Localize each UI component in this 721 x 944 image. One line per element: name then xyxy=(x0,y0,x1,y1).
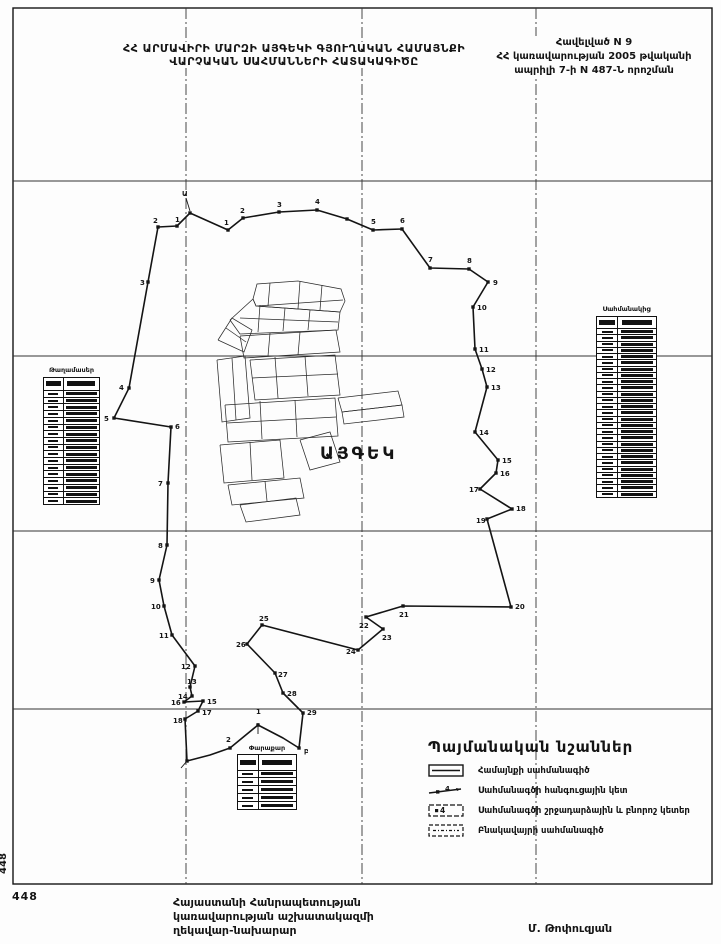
illegible-text-smudge xyxy=(242,805,253,807)
illegible-text-smudge xyxy=(621,424,654,427)
boundary-point-label: 6 xyxy=(400,217,405,225)
illegible-text-smudge xyxy=(242,781,253,783)
illegible-text-smudge xyxy=(621,449,654,452)
community-boundary-line-icon xyxy=(428,764,468,777)
settlement-parcel-line xyxy=(305,356,308,396)
illegible-text-smudge xyxy=(602,418,613,420)
table-cell xyxy=(238,786,259,793)
illegible-text-smudge xyxy=(621,355,654,358)
boundary-point-dot xyxy=(170,633,173,636)
boundary-point-label: 27 xyxy=(278,671,288,679)
boundary-point-dot xyxy=(201,699,204,702)
boundary-point-label: 18 xyxy=(173,717,183,725)
table-row xyxy=(597,491,656,497)
illegible-text-smudge xyxy=(602,362,613,364)
illegible-text-smudge xyxy=(602,424,613,426)
table-cell xyxy=(238,755,259,770)
boundary-point-dot xyxy=(478,487,481,490)
legend-item: 4 Սահմանագծի հանգուցային կետ xyxy=(428,784,710,797)
settlement-boundary-line-icon xyxy=(428,824,468,837)
illegible-text-smudge xyxy=(602,406,613,408)
boundary-point-dot xyxy=(185,759,188,762)
table-row xyxy=(44,491,99,498)
boundary-point-label: 12 xyxy=(486,366,496,374)
boundary-point-label: 23 xyxy=(382,634,392,642)
boundary-point-dot xyxy=(480,367,483,370)
legend-item: 4 Սահմանագծի շրջադարձային և բնորոշ կետեր xyxy=(428,804,710,817)
illegible-text-smudge xyxy=(602,493,613,495)
illegible-text-smudge xyxy=(48,406,58,408)
illegible-text-smudge xyxy=(602,387,613,389)
legend-item: Համայնքի սահմանագիծ xyxy=(428,764,710,777)
boundary-point-dot xyxy=(510,507,513,510)
legend-item-label: Համայնքի սահմանագիծ xyxy=(478,766,590,776)
settlement-parcel-line xyxy=(260,401,262,439)
settlement-parcel-line xyxy=(295,400,297,437)
table-cell xyxy=(64,498,99,504)
table-row xyxy=(44,437,99,444)
community-boundary-polyline xyxy=(114,210,512,761)
table-row xyxy=(44,464,99,471)
table-cell xyxy=(259,794,296,801)
illegible-text-smudge xyxy=(48,467,58,469)
boundary-point-dot xyxy=(364,615,367,618)
table-row xyxy=(44,397,99,404)
bottom-coordinate-table xyxy=(237,754,297,810)
boundary-point-label: 20 xyxy=(515,603,525,611)
illegible-text-smudge xyxy=(48,460,58,462)
table-cell xyxy=(44,498,64,504)
table-header-row xyxy=(44,378,99,390)
table-cell xyxy=(238,794,259,801)
boundary-point-label: 2 xyxy=(240,207,245,215)
table-row xyxy=(44,430,99,437)
boundary-point-label: 4 xyxy=(119,384,124,392)
boundary-point-dot xyxy=(175,224,178,227)
illegible-text-smudge xyxy=(622,320,652,325)
appendix-line3: ապրիլի 7-ի N 487-Ն որոշման xyxy=(478,64,710,78)
boundary-point-label: 15 xyxy=(207,698,217,706)
boundary-point-dot xyxy=(169,425,172,428)
boundary-point-label: 11 xyxy=(159,632,169,640)
illegible-text-smudge xyxy=(621,436,654,439)
illegible-text-smudge xyxy=(48,413,58,415)
table-header-row xyxy=(597,317,656,328)
illegible-text-smudge xyxy=(602,468,613,470)
illegible-text-smudge xyxy=(621,411,654,414)
settlement-parcel-line xyxy=(298,281,300,309)
illegible-text-smudge xyxy=(621,405,654,408)
settlement-name-label: ԱՅԳԵԿ xyxy=(320,444,450,464)
boundary-point-dot xyxy=(381,627,384,630)
boundary-point-dot xyxy=(486,280,489,283)
table-row xyxy=(44,444,99,451)
illegible-text-smudge xyxy=(66,459,96,462)
boundary-point-dot xyxy=(428,266,431,269)
boundary-point-dot xyxy=(494,471,497,474)
boundary-point-label: 12 xyxy=(181,663,191,671)
illegible-text-smudge xyxy=(602,356,613,358)
illegible-text-smudge xyxy=(602,331,613,333)
boundary-point-label: 18 xyxy=(516,505,526,513)
table-row xyxy=(238,777,296,785)
boundary-point-label: 7 xyxy=(158,480,163,488)
illegible-text-smudge xyxy=(48,493,58,495)
table-cell xyxy=(259,786,296,793)
boundary-point-label: 13 xyxy=(187,678,197,686)
illegible-text-smudge xyxy=(48,446,58,448)
boundary-point-dot xyxy=(146,280,149,283)
illegible-text-smudge xyxy=(48,480,58,482)
illegible-text-smudge xyxy=(621,418,654,421)
illegible-text-smudge xyxy=(621,368,654,371)
boundary-point-dot xyxy=(371,228,374,231)
signature-name: Մ. Թոփուզյան xyxy=(528,922,612,935)
boundary-point-label: 2 xyxy=(153,217,158,225)
illegible-text-smudge xyxy=(621,486,654,489)
boundary-point-dot xyxy=(193,664,196,667)
table-row xyxy=(238,793,296,801)
boundary-point-dot xyxy=(345,217,348,220)
illegible-text-smudge xyxy=(621,399,654,402)
boundary-point-label: 19 xyxy=(476,517,486,525)
table-cell xyxy=(259,771,296,778)
illegible-text-smudge xyxy=(48,400,58,402)
illegible-text-smudge xyxy=(621,493,654,496)
settlement-parcel-line xyxy=(298,332,300,355)
boundary-point-dot xyxy=(260,623,263,626)
page-title: ՀՀ ԱՐՄԱՎԻՐԻ ՄԱՐԶԻ ԱՅԳԵԿԻ ԳՅՈՒՂԱԿԱՆ ՀԱՄԱՅ… xyxy=(98,42,490,68)
illegible-text-smudge xyxy=(66,433,96,436)
appendix-line1: Հավելված N 9 xyxy=(478,36,710,50)
boundary-point-label: 5 xyxy=(371,218,376,226)
boundary-point-label: բ xyxy=(304,747,309,755)
illegible-text-smudge xyxy=(621,386,654,389)
boundary-point-label: 29 xyxy=(307,709,317,717)
boundary-point-label: 3 xyxy=(277,201,282,209)
boundary-point-dot xyxy=(315,208,318,211)
illegible-text-smudge xyxy=(66,466,96,469)
boundary-point-label: 10 xyxy=(477,304,487,312)
boundary-point-dot xyxy=(228,746,231,749)
boundary-point-label: 9 xyxy=(493,279,498,287)
settlement-parcel-line xyxy=(232,358,236,420)
illegible-text-smudge xyxy=(621,374,654,377)
illegible-text-smudge xyxy=(602,399,613,401)
issuer-line1: Հայաստանի Հանրապետության xyxy=(173,896,374,910)
illegible-text-smudge xyxy=(46,381,61,386)
boundary-point-label: 16 xyxy=(171,699,181,707)
boundary-point-label: 2 xyxy=(226,736,231,744)
illegible-text-smudge xyxy=(66,486,96,489)
table-row xyxy=(44,470,99,477)
illegible-text-smudge xyxy=(66,439,96,442)
boundary-point-label: 21 xyxy=(399,611,409,619)
boundary-point-label: 14 xyxy=(479,429,489,437)
boundary-point-label: 17 xyxy=(202,709,212,717)
illegible-text-smudge xyxy=(48,473,58,475)
boundary-point-label: 4 xyxy=(315,198,320,206)
illegible-text-smudge xyxy=(602,393,613,395)
scanned-cadastral-map-page: Ա123456789101112131415161718192021222324… xyxy=(0,0,721,944)
boundary-point-dot xyxy=(509,605,512,608)
illegible-text-smudge xyxy=(602,481,613,483)
illegible-text-smudge xyxy=(602,343,613,345)
illegible-text-smudge xyxy=(602,456,613,458)
settlement-parcel-line xyxy=(265,481,267,501)
svg-text:4: 4 xyxy=(440,806,445,815)
boundary-point-dot xyxy=(190,694,193,697)
page-title-line2: ՎԱՐՉԱԿԱՆ ՍԱՀՄԱՆՆԵՐԻ ՀԱՏԱԿԱԳԻԾԸ xyxy=(98,55,490,68)
illegible-text-smudge xyxy=(66,473,96,476)
illegible-text-smudge xyxy=(621,480,654,483)
illegible-text-smudge xyxy=(621,349,654,352)
illegible-text-smudge xyxy=(621,380,654,383)
table-cell xyxy=(259,802,296,809)
boundary-point-label: 1 xyxy=(256,708,261,716)
settlement-parcel-line xyxy=(218,318,252,352)
illegible-text-smudge xyxy=(621,443,654,446)
illegible-text-smudge xyxy=(48,453,58,455)
boundary-point-dot xyxy=(196,709,199,712)
illegible-text-smudge xyxy=(621,330,654,333)
point-leader-line xyxy=(186,198,190,211)
boundary-point-label: Ա xyxy=(182,190,188,198)
legend: Պայմանական նշաններ Համայնքի սահմանագիծ 4… xyxy=(428,738,710,844)
illegible-text-smudge xyxy=(261,780,293,783)
illegible-text-smudge xyxy=(602,374,613,376)
illegible-text-smudge xyxy=(602,449,613,451)
boundary-point-dot xyxy=(273,671,276,674)
table-row xyxy=(44,484,99,491)
boundary-point-label: 9 xyxy=(150,577,155,585)
right-coordinate-table xyxy=(596,316,657,498)
boundary-point-dot xyxy=(301,711,304,714)
illegible-text-smudge xyxy=(262,760,292,765)
legend-item-label: Բնակավայրի սահմանագիծ xyxy=(478,826,604,836)
boundary-point-dot xyxy=(401,604,404,607)
table-cell xyxy=(259,778,296,785)
settlement-parcel-line xyxy=(252,374,338,378)
table-cell xyxy=(238,771,259,778)
illegible-text-smudge xyxy=(66,426,96,429)
settlement-parcel-line xyxy=(227,417,336,423)
boundary-point-dot xyxy=(400,227,403,230)
illegible-text-smudge xyxy=(48,426,58,428)
boundary-point-dot xyxy=(183,717,186,720)
settlement-parcel-line xyxy=(308,310,310,330)
page-title-line1: ՀՀ ԱՐՄԱՎԻՐԻ ՄԱՐԶԻ ԱՅԳԵԿԻ ԳՅՈՒՂԱԿԱՆ ՀԱՄԱՅ… xyxy=(98,42,490,55)
table-row xyxy=(238,770,296,778)
settlement-parcel-line xyxy=(268,283,270,306)
boundary-point-dot xyxy=(156,225,159,228)
table-cell xyxy=(44,378,64,390)
illegible-text-smudge xyxy=(261,772,293,775)
table-row xyxy=(238,785,296,793)
settlement-parcel-line xyxy=(250,442,252,480)
table-cell xyxy=(64,378,99,390)
illegible-text-smudge xyxy=(602,349,613,351)
illegible-text-smudge xyxy=(240,760,256,765)
table-row xyxy=(44,457,99,464)
boundary-point-label: 26 xyxy=(236,641,246,649)
appendix-reference: Հավելված N 9 ՀՀ կառավարության 2005 թվակա… xyxy=(478,36,710,78)
junction-point-icon: 4 xyxy=(428,784,468,797)
settlement-parcel-line xyxy=(240,330,340,358)
bottom-table-title: Փարաքար xyxy=(235,744,299,752)
boundary-point-label: 16 xyxy=(500,470,510,478)
illegible-text-smudge xyxy=(66,500,96,503)
boundary-point-label: 1 xyxy=(175,216,180,224)
illegible-text-smudge xyxy=(602,487,613,489)
boundary-point-label: 15 xyxy=(502,457,512,465)
left-table-title: Թաղամասեր xyxy=(41,366,102,374)
illegible-text-smudge xyxy=(242,773,253,775)
boundary-point-dot xyxy=(356,648,359,651)
illegible-text-smudge xyxy=(261,804,293,807)
illegible-text-smudge xyxy=(48,487,58,489)
table-cell xyxy=(259,755,296,770)
boundary-point-label: 10 xyxy=(151,603,161,611)
boundary-point-label: 3 xyxy=(140,279,145,287)
illegible-text-smudge xyxy=(621,343,654,346)
boundary-point-dot xyxy=(165,543,168,546)
boundary-point-dot xyxy=(166,481,169,484)
illegible-text-smudge xyxy=(66,453,96,456)
settlement-parcel-line xyxy=(240,318,338,322)
boundary-point-dot xyxy=(127,386,130,389)
boundary-point-dot xyxy=(485,517,488,520)
table-row xyxy=(44,390,99,397)
illegible-text-smudge xyxy=(621,461,654,464)
boundary-point-label: 8 xyxy=(467,257,472,265)
boundary-point-dot xyxy=(496,458,499,461)
table-row xyxy=(44,450,99,457)
settlement-parcel-line xyxy=(320,285,322,310)
illegible-text-smudge xyxy=(602,381,613,383)
issuer-line2: կառավարության աշխատակազմի xyxy=(173,910,374,924)
table-row xyxy=(44,410,99,417)
boundary-point-dot xyxy=(485,385,488,388)
boundary-point-label: 28 xyxy=(287,690,297,698)
illegible-text-smudge xyxy=(602,437,613,439)
boundary-point-label: 17 xyxy=(469,486,479,494)
table-cell xyxy=(597,317,618,328)
table-row xyxy=(44,424,99,431)
settlement-parcel-line xyxy=(342,405,404,424)
illegible-text-smudge xyxy=(602,443,613,445)
settlement-parcel-line xyxy=(275,357,278,398)
issuer-text-block: Հայաստանի Հանրապետության կառավարության ա… xyxy=(173,896,374,938)
illegible-text-smudge xyxy=(66,446,96,449)
table-cell xyxy=(597,492,618,497)
boundary-point-label: 5 xyxy=(104,415,109,423)
boundary-point-label: 22 xyxy=(359,622,369,630)
illegible-text-smudge xyxy=(621,336,654,339)
boundary-point-dot xyxy=(162,604,165,607)
table-row xyxy=(238,801,296,809)
illegible-text-smudge xyxy=(599,320,615,325)
legend-item-label: Սահմանագծի հանգուցային կետ xyxy=(478,786,628,796)
table-row xyxy=(44,417,99,424)
table-cell xyxy=(618,317,656,328)
settlement-parcel-line xyxy=(257,300,343,306)
settlement-parcel-line xyxy=(217,356,250,422)
illegible-text-smudge xyxy=(66,412,96,415)
issuer-line3: ղեկավար-նախարար xyxy=(173,924,374,938)
illegible-text-smudge xyxy=(621,474,654,477)
settlement-parcel-line xyxy=(268,333,270,356)
page-number-side: 448 xyxy=(0,853,9,874)
legend-item: Բնակավայրի սահմանագիծ xyxy=(428,824,710,837)
illegible-text-smudge xyxy=(242,797,253,799)
page-number-corner: 448 xyxy=(12,890,38,903)
boundary-point-dot xyxy=(226,228,229,231)
boundary-point-label: 1 xyxy=(224,219,229,227)
boundary-point-dot xyxy=(112,416,115,419)
table-row xyxy=(44,497,99,504)
legend-item-label: Սահմանագծի շրջադարձային և բնորոշ կետեր xyxy=(478,806,690,816)
table-row xyxy=(44,403,99,410)
illegible-text-smudge xyxy=(66,406,96,409)
table-cell xyxy=(238,778,259,785)
illegible-text-smudge xyxy=(602,337,613,339)
boundary-point-dot xyxy=(473,347,476,350)
illegible-text-smudge xyxy=(67,381,95,386)
illegible-text-smudge xyxy=(261,796,293,799)
illegible-text-smudge xyxy=(48,440,58,442)
boundary-point-label: 11 xyxy=(479,346,489,354)
boundary-point-dot xyxy=(182,700,185,703)
table-cell xyxy=(238,802,259,809)
left-coordinate-table xyxy=(43,377,100,505)
illegible-text-smudge xyxy=(261,788,293,791)
settlement-parcel-line xyxy=(240,498,300,522)
boundary-point-dot xyxy=(467,267,470,270)
boundary-point-label: 24 xyxy=(346,648,356,656)
table-cell xyxy=(618,492,656,497)
boundary-point-dot xyxy=(471,305,474,308)
right-table-title: Սահմանակից xyxy=(594,305,659,313)
illegible-text-smudge xyxy=(621,468,654,471)
boundary-point-dot xyxy=(157,578,160,581)
illegible-text-smudge xyxy=(66,493,96,496)
boundary-point-label: 25 xyxy=(259,615,269,623)
illegible-text-smudge xyxy=(621,430,654,433)
illegible-text-smudge xyxy=(621,455,654,458)
boundary-point-label: 6 xyxy=(175,423,180,431)
boundary-point-dot xyxy=(277,210,280,213)
illegible-text-smudge xyxy=(621,393,654,396)
illegible-text-smudge xyxy=(602,368,613,370)
legend-title: Պայմանական նշաններ xyxy=(428,738,710,756)
svg-text:4: 4 xyxy=(445,785,450,793)
boundary-point-label: 8 xyxy=(158,542,163,550)
illegible-text-smudge xyxy=(66,399,96,402)
boundary-point-dot xyxy=(188,211,191,214)
illegible-text-smudge xyxy=(48,500,58,502)
illegible-text-smudge xyxy=(66,479,96,482)
boundary-point-dot xyxy=(245,642,248,645)
illegible-text-smudge xyxy=(48,393,58,395)
illegible-text-smudge xyxy=(621,361,654,364)
table-header-row xyxy=(238,755,296,770)
boundary-point-dot xyxy=(281,691,284,694)
illegible-text-smudge xyxy=(242,789,253,791)
table-row xyxy=(44,477,99,484)
illegible-text-smudge xyxy=(602,431,613,433)
boundary-point-label: 13 xyxy=(491,384,501,392)
